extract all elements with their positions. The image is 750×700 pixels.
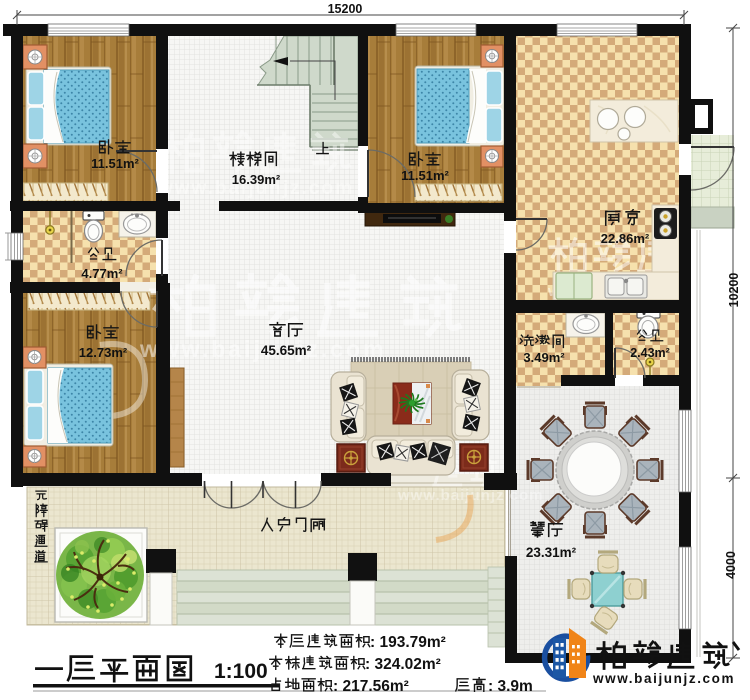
svg-text:4.77m²: 4.77m² bbox=[81, 266, 123, 281]
svg-text:22.86m²: 22.86m² bbox=[601, 231, 650, 246]
svg-text:45.65m²: 45.65m² bbox=[261, 343, 312, 358]
svg-text:4000: 4000 bbox=[724, 551, 738, 579]
svg-text:: 3.9m: : 3.9m bbox=[488, 678, 533, 695]
svg-text:www.baijunjz.com: www.baijunjz.com bbox=[592, 671, 735, 686]
svg-text:23.31m²: 23.31m² bbox=[526, 545, 577, 560]
svg-text:11.51m²: 11.51m² bbox=[91, 156, 139, 171]
svg-text:11.51m²: 11.51m² bbox=[401, 168, 449, 183]
svg-text:12.73m²: 12.73m² bbox=[79, 345, 128, 360]
svg-text:2.43m²: 2.43m² bbox=[630, 346, 670, 360]
svg-text:: 324.02m²: : 324.02m² bbox=[365, 656, 441, 673]
svg-text:3.49m²: 3.49m² bbox=[523, 350, 565, 365]
svg-text:: 193.79m²: : 193.79m² bbox=[370, 634, 446, 651]
svg-text:1:100: 1:100 bbox=[214, 660, 268, 683]
svg-text:: 217.56m²: : 217.56m² bbox=[333, 678, 409, 695]
svg-text:15200: 15200 bbox=[328, 2, 363, 16]
svg-text:16.39m²: 16.39m² bbox=[232, 172, 281, 187]
svg-text:10200: 10200 bbox=[727, 273, 741, 308]
